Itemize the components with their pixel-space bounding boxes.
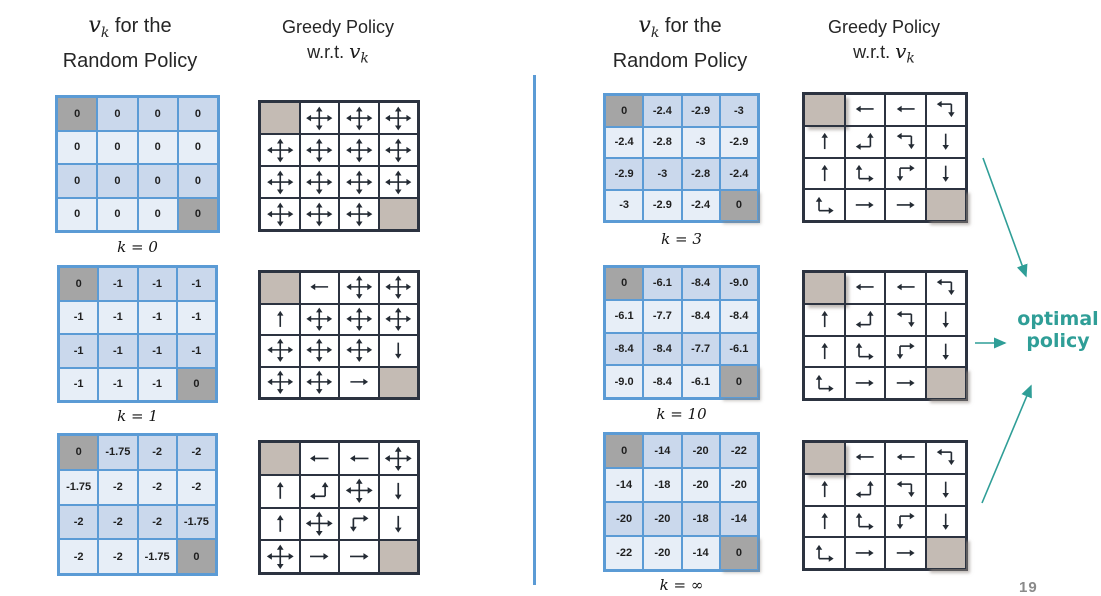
- arrow-4way-icon: [302, 337, 337, 364]
- greedy-policy-grid-k0: [258, 100, 420, 232]
- arrow-up-icon: [807, 508, 842, 535]
- value-cell: 0: [178, 97, 218, 131]
- arrow-left-up-icon: [302, 477, 337, 505]
- greedy-policy-title-left: Greedy Policy w.r.t. vk: [252, 15, 424, 71]
- terminal-cell: [804, 442, 845, 474]
- policy-cell: [339, 475, 379, 508]
- policy-cell: [885, 126, 926, 158]
- arrow-down-icon: [381, 510, 416, 538]
- arrow-4way-icon: [381, 306, 416, 333]
- policy-cell: [300, 102, 340, 134]
- policy-cell: [804, 189, 845, 221]
- value-cell: -2.4: [643, 95, 681, 127]
- value-cell: -7.7: [682, 333, 720, 366]
- policy-cell: [926, 304, 967, 336]
- arrow-up-right-icon: [847, 338, 882, 365]
- value-cell: -6.1: [720, 333, 758, 366]
- terminal-cell: [260, 442, 300, 475]
- arrow-4way-icon: [263, 201, 298, 228]
- policy-cell: [804, 304, 845, 336]
- policy-cell: [300, 508, 340, 541]
- policy-cell: [260, 367, 300, 399]
- value-cell: -1: [138, 301, 177, 335]
- title-line-1: vk for the: [25, 12, 235, 47]
- arrow-left-icon: [342, 445, 377, 473]
- arrow-right-down-icon: [888, 508, 923, 535]
- value-cell: 0: [57, 198, 97, 232]
- value-cell: -14: [605, 468, 643, 502]
- arrow-right-icon: [888, 370, 923, 397]
- arrow-left-down-icon: [888, 128, 923, 155]
- value-cell: -22: [720, 434, 758, 468]
- arrow-left-down-icon: [928, 96, 963, 123]
- value-cell: -20: [682, 468, 720, 502]
- terminal-cell: [804, 272, 845, 304]
- arrow-left-down-icon: [928, 444, 963, 471]
- policy-cell: [379, 166, 419, 198]
- arrow-up-icon: [807, 160, 842, 187]
- arrow-4way-icon: [302, 369, 337, 396]
- value-cell: -14: [720, 502, 758, 536]
- value-cell: -2.9: [643, 190, 681, 222]
- policy-cell: [926, 442, 967, 474]
- math-k-subscript: k: [906, 51, 914, 67]
- slide: { "titles": { "v": "v", "k_sub": "k", "f…: [0, 0, 1101, 596]
- terminal-cell: 0: [605, 434, 643, 468]
- policy-cell: [260, 508, 300, 541]
- terminal-cell: [379, 540, 419, 573]
- title-for-the: for the: [109, 15, 171, 37]
- policy-cell: [379, 508, 419, 541]
- annotation-arrow-bottom: [982, 386, 1031, 503]
- policy-cell: [260, 198, 300, 230]
- arrow-4way-icon: [302, 306, 337, 333]
- policy-cell: [300, 540, 340, 573]
- value-cell: -3: [682, 127, 720, 159]
- policy-cell: [339, 508, 379, 541]
- policy-cell: [339, 540, 379, 573]
- arrow-right-down-icon: [888, 338, 923, 365]
- arrow-right-down-icon: [888, 160, 923, 187]
- policy-cell: [845, 304, 886, 336]
- value-cell: -2: [138, 470, 177, 505]
- value-cell: -1: [177, 334, 216, 368]
- arrow-down-icon: [928, 476, 963, 503]
- policy-cell: [845, 474, 886, 506]
- terminal-cell: 0: [57, 97, 97, 131]
- policy-cell: [339, 198, 379, 230]
- policy-cell: [885, 158, 926, 190]
- arrow-4way-icon: [302, 510, 337, 538]
- terminal-cell: [926, 189, 967, 221]
- arrow-4way-icon: [263, 369, 298, 396]
- value-cell: -2: [59, 505, 98, 540]
- policy-cell: [845, 506, 886, 538]
- policy-cell: [300, 198, 340, 230]
- policy-cell: [379, 102, 419, 134]
- arrow-left-down-icon: [888, 476, 923, 503]
- arrow-down-icon: [928, 338, 963, 365]
- arrow-left-down-icon: [888, 306, 923, 333]
- k-label-3: k = 3: [603, 230, 760, 248]
- policy-cell: [926, 126, 967, 158]
- policy-cell: [926, 336, 967, 368]
- arrow-4way-icon: [302, 137, 337, 164]
- policy-cell: [926, 474, 967, 506]
- greedy-policy-title-right: Greedy Policy w.r.t. vk: [798, 15, 970, 71]
- value-grid-k1: 0-1-1-1-1-1-1-1-1-1-1-1-1-1-10: [57, 265, 218, 403]
- value-cell: -2: [177, 470, 216, 505]
- arrow-4way-icon: [263, 137, 298, 164]
- policy-cell: [845, 442, 886, 474]
- policy-cell: [260, 166, 300, 198]
- policy-cell: [379, 442, 419, 475]
- value-cell: -1.75: [98, 435, 137, 470]
- value-cell: -2.4: [720, 158, 758, 190]
- arrow-left-icon: [888, 444, 923, 471]
- policy-cell: [804, 537, 845, 569]
- arrow-up-right-icon: [807, 192, 842, 219]
- arrow-up-icon: [807, 306, 842, 333]
- vertical-divider-line: [533, 75, 536, 585]
- value-grid-kinf: 0-14-20-22-14-18-20-20-20-20-18-14-22-20…: [603, 432, 760, 572]
- arrow-right-icon: [847, 540, 882, 567]
- value-cell: -1.75: [177, 505, 216, 540]
- arrow-down-icon: [381, 337, 416, 364]
- arrow-4way-icon: [381, 274, 416, 301]
- policy-cell: [339, 102, 379, 134]
- value-cell: 0: [178, 164, 218, 198]
- policy-cell: [260, 540, 300, 573]
- arrow-down-icon: [928, 508, 963, 535]
- policy-cell: [339, 335, 379, 367]
- greedy-policy-grid-k3: [802, 92, 968, 223]
- k-label-inf: k = ∞: [603, 576, 760, 594]
- policy-cell: [300, 134, 340, 166]
- value-cell: -20: [682, 434, 720, 468]
- k-label-1: k = 1: [57, 407, 218, 425]
- policy-cell: [300, 304, 340, 336]
- policy-cell: [260, 134, 300, 166]
- policy-cell: [885, 442, 926, 474]
- vk-random-policy-title-right: vk for the Random Policy: [575, 12, 785, 75]
- terminal-cell: [926, 537, 967, 569]
- value-cell: -1.75: [59, 470, 98, 505]
- arrow-down-icon: [928, 128, 963, 155]
- terminal-cell: 0: [720, 365, 758, 398]
- title-for-the: for the: [659, 15, 721, 37]
- arrow-up-icon: [807, 476, 842, 503]
- title-random-policy: Random Policy: [25, 47, 235, 75]
- policy-cell: [379, 304, 419, 336]
- value-grid-k3: 0-2.4-2.9-3-2.4-2.8-3-2.9-2.9-3-2.8-2.4-…: [603, 93, 760, 223]
- value-cell: -8.4: [643, 333, 681, 366]
- value-cell: 0: [97, 97, 137, 131]
- policy-cell: [339, 166, 379, 198]
- value-cell: -1: [98, 301, 137, 335]
- value-cell: -20: [605, 502, 643, 536]
- greedy-policy-grid-kinf: [802, 440, 968, 571]
- arrow-4way-icon: [263, 543, 298, 571]
- terminal-cell: 0: [59, 435, 98, 470]
- value-cell: -2: [98, 539, 137, 574]
- policy-cell: [845, 367, 886, 399]
- policy-cell: [804, 336, 845, 368]
- terminal-cell: [804, 94, 845, 126]
- value-cell: -18: [643, 468, 681, 502]
- policy-cell: [845, 336, 886, 368]
- value-cell: -2: [138, 505, 177, 540]
- arrow-left-icon: [888, 274, 923, 301]
- policy-cell: [300, 367, 340, 399]
- policy-cell: [260, 304, 300, 336]
- value-cell: 0: [97, 131, 137, 165]
- policy-cell: [804, 506, 845, 538]
- value-cell: 0: [138, 198, 178, 232]
- policy-cell: [885, 304, 926, 336]
- title-line-1: vk for the: [575, 12, 785, 47]
- value-cell: -1: [59, 334, 98, 368]
- math-v: v: [895, 39, 906, 63]
- value-cell: 0: [97, 198, 137, 232]
- arrow-4way-icon: [381, 445, 416, 473]
- arrow-up-right-icon: [847, 160, 882, 187]
- optimal-policy-label: optimal policy: [1012, 308, 1101, 352]
- value-cell: 0: [57, 164, 97, 198]
- value-cell: 0: [138, 97, 178, 131]
- arrow-up-right-icon: [847, 508, 882, 535]
- terminal-cell: [260, 272, 300, 304]
- policy-cell: [804, 367, 845, 399]
- value-cell: -2.9: [605, 158, 643, 190]
- policy-cell: [885, 272, 926, 304]
- greedy-policy-grid-k1: [258, 270, 420, 400]
- value-cell: -20: [643, 502, 681, 536]
- value-cell: -1: [138, 334, 177, 368]
- policy-cell: [379, 272, 419, 304]
- arrow-up-icon: [807, 128, 842, 155]
- value-cell: -2.8: [682, 158, 720, 190]
- arrow-4way-icon: [342, 477, 377, 505]
- arrow-down-icon: [381, 477, 416, 505]
- arrow-4way-icon: [342, 137, 377, 164]
- policy-cell: [300, 475, 340, 508]
- policy-cell: [845, 272, 886, 304]
- terminal-cell: 0: [177, 539, 216, 574]
- policy-cell: [885, 537, 926, 569]
- value-cell: -1: [98, 267, 137, 301]
- terminal-cell: 0: [605, 267, 643, 300]
- policy-cell: [926, 158, 967, 190]
- value-cell: -3: [720, 95, 758, 127]
- arrow-left-icon: [847, 274, 882, 301]
- value-cell: -2: [98, 470, 137, 505]
- arrow-left-down-icon: [928, 274, 963, 301]
- arrow-left-up-icon: [847, 128, 882, 155]
- arrow-4way-icon: [381, 105, 416, 132]
- arrow-up-icon: [263, 306, 298, 333]
- value-cell: -2: [59, 539, 98, 574]
- value-cell: -14: [643, 434, 681, 468]
- value-cell: -8.4: [682, 300, 720, 333]
- arrow-up-right-icon: [807, 370, 842, 397]
- value-cell: -2: [98, 505, 137, 540]
- page-number: 19: [1019, 579, 1038, 596]
- k-label-0: k = 0: [55, 238, 220, 256]
- policy-cell: [845, 189, 886, 221]
- value-cell: -18: [682, 502, 720, 536]
- policy-cell: [845, 94, 886, 126]
- value-cell: -6.1: [643, 267, 681, 300]
- policy-cell: [379, 335, 419, 367]
- arrow-4way-icon: [302, 201, 337, 228]
- value-cell: 0: [178, 131, 218, 165]
- value-cell: -3: [605, 190, 643, 222]
- value-cell: -8.4: [720, 300, 758, 333]
- terminal-cell: 0: [720, 536, 758, 570]
- policy-cell: [926, 506, 967, 538]
- arrow-right-icon: [847, 192, 882, 219]
- policy-cell: [804, 126, 845, 158]
- arrow-4way-icon: [342, 201, 377, 228]
- arrow-right-down-icon: [342, 510, 377, 538]
- policy-cell: [845, 537, 886, 569]
- arrow-left-icon: [888, 96, 923, 123]
- arrow-right-icon: [342, 543, 377, 571]
- arrow-right-icon: [342, 369, 377, 396]
- policy-cell: [926, 272, 967, 304]
- value-cell: -8.4: [605, 333, 643, 366]
- terminal-cell: 0: [59, 267, 98, 301]
- policy-cell: [885, 367, 926, 399]
- value-cell: 0: [138, 131, 178, 165]
- arrow-right-icon: [888, 192, 923, 219]
- value-cell: -8.4: [682, 267, 720, 300]
- title-wrt: w.r.t. vk: [798, 39, 970, 71]
- terminal-cell: 0: [178, 198, 218, 232]
- arrow-up-icon: [263, 477, 298, 505]
- title-greedy-policy: Greedy Policy: [798, 15, 970, 39]
- arrow-4way-icon: [342, 306, 377, 333]
- value-cell: 0: [97, 164, 137, 198]
- policy-cell: [260, 335, 300, 367]
- value-cell: 0: [57, 131, 97, 165]
- policy-cell: [379, 134, 419, 166]
- arrow-right-icon: [302, 543, 337, 571]
- value-cell: -3: [643, 158, 681, 190]
- value-cell: -6.1: [682, 365, 720, 398]
- value-cell: -2.4: [605, 127, 643, 159]
- arrow-up-icon: [807, 338, 842, 365]
- annotation-arrow-top: [983, 158, 1026, 276]
- arrow-right-icon: [888, 540, 923, 567]
- value-cell: -1: [98, 368, 137, 402]
- value-grid-k2: 0-1.75-2-2-1.75-2-2-2-2-2-2-1.75-2-2-1.7…: [57, 433, 218, 576]
- arrow-4way-icon: [342, 105, 377, 132]
- terminal-cell: [379, 198, 419, 230]
- policy-cell: [804, 474, 845, 506]
- value-grid-k0: 0000000000000000: [55, 95, 220, 233]
- value-cell: -6.1: [605, 300, 643, 333]
- value-cell: -22: [605, 536, 643, 570]
- policy-cell: [339, 134, 379, 166]
- terminal-cell: 0: [605, 95, 643, 127]
- policy-cell: [300, 166, 340, 198]
- policy-cell: [885, 189, 926, 221]
- policy-cell: [845, 158, 886, 190]
- policy-cell: [845, 126, 886, 158]
- title-random-policy: Random Policy: [575, 47, 785, 75]
- greedy-policy-grid-k10: [802, 270, 968, 401]
- value-cell: -2.8: [643, 127, 681, 159]
- policy-cell: [300, 272, 340, 304]
- terminal-cell: 0: [720, 190, 758, 222]
- title-wrt: w.r.t. vk: [252, 39, 424, 71]
- value-cell: -2: [177, 435, 216, 470]
- value-cell: -2.9: [720, 127, 758, 159]
- terminal-cell: 0: [177, 368, 216, 402]
- value-cell: -8.4: [643, 365, 681, 398]
- value-cell: -14: [682, 536, 720, 570]
- policy-cell: [926, 94, 967, 126]
- policy-cell: [300, 442, 340, 475]
- arrow-left-up-icon: [847, 306, 882, 333]
- policy-cell: [260, 475, 300, 508]
- greedy-policy-grid-k2: [258, 440, 420, 575]
- policy-cell: [339, 272, 379, 304]
- arrow-left-icon: [302, 445, 337, 473]
- policy-cell: [885, 336, 926, 368]
- value-cell: -2: [138, 435, 177, 470]
- policy-cell: [804, 158, 845, 190]
- arrow-right-icon: [847, 370, 882, 397]
- value-cell: -9.0: [605, 365, 643, 398]
- value-cell: -1: [138, 267, 177, 301]
- vk-random-policy-title-left: vk for the Random Policy: [25, 12, 235, 75]
- arrow-left-icon: [302, 274, 337, 301]
- arrow-left-up-icon: [847, 476, 882, 503]
- value-grid-k10: 0-6.1-8.4-9.0-6.1-7.7-8.4-8.4-8.4-8.4-7.…: [603, 265, 760, 400]
- value-cell: -9.0: [720, 267, 758, 300]
- arrow-4way-icon: [381, 137, 416, 164]
- arrow-down-icon: [928, 306, 963, 333]
- policy-cell: [379, 475, 419, 508]
- policy-cell: [300, 335, 340, 367]
- value-cell: -7.7: [643, 300, 681, 333]
- terminal-cell: [926, 367, 967, 399]
- value-cell: -2.4: [682, 190, 720, 222]
- math-v: v: [638, 13, 650, 38]
- value-cell: -20: [720, 468, 758, 502]
- policy-cell: [339, 304, 379, 336]
- arrow-4way-icon: [381, 169, 416, 196]
- terminal-cell: [379, 367, 419, 399]
- k-label-10: k = 10: [603, 405, 760, 423]
- value-cell: -1: [177, 267, 216, 301]
- terminal-cell: [260, 102, 300, 134]
- title-greedy-policy: Greedy Policy: [252, 15, 424, 39]
- value-cell: -1: [177, 301, 216, 335]
- value-cell: -20: [643, 536, 681, 570]
- policy-cell: [339, 367, 379, 399]
- policy-cell: [339, 442, 379, 475]
- arrow-4way-icon: [342, 337, 377, 364]
- arrow-left-icon: [847, 444, 882, 471]
- arrow-4way-icon: [302, 105, 337, 132]
- arrow-4way-icon: [263, 169, 298, 196]
- value-cell: -1: [59, 368, 98, 402]
- value-cell: -1: [98, 334, 137, 368]
